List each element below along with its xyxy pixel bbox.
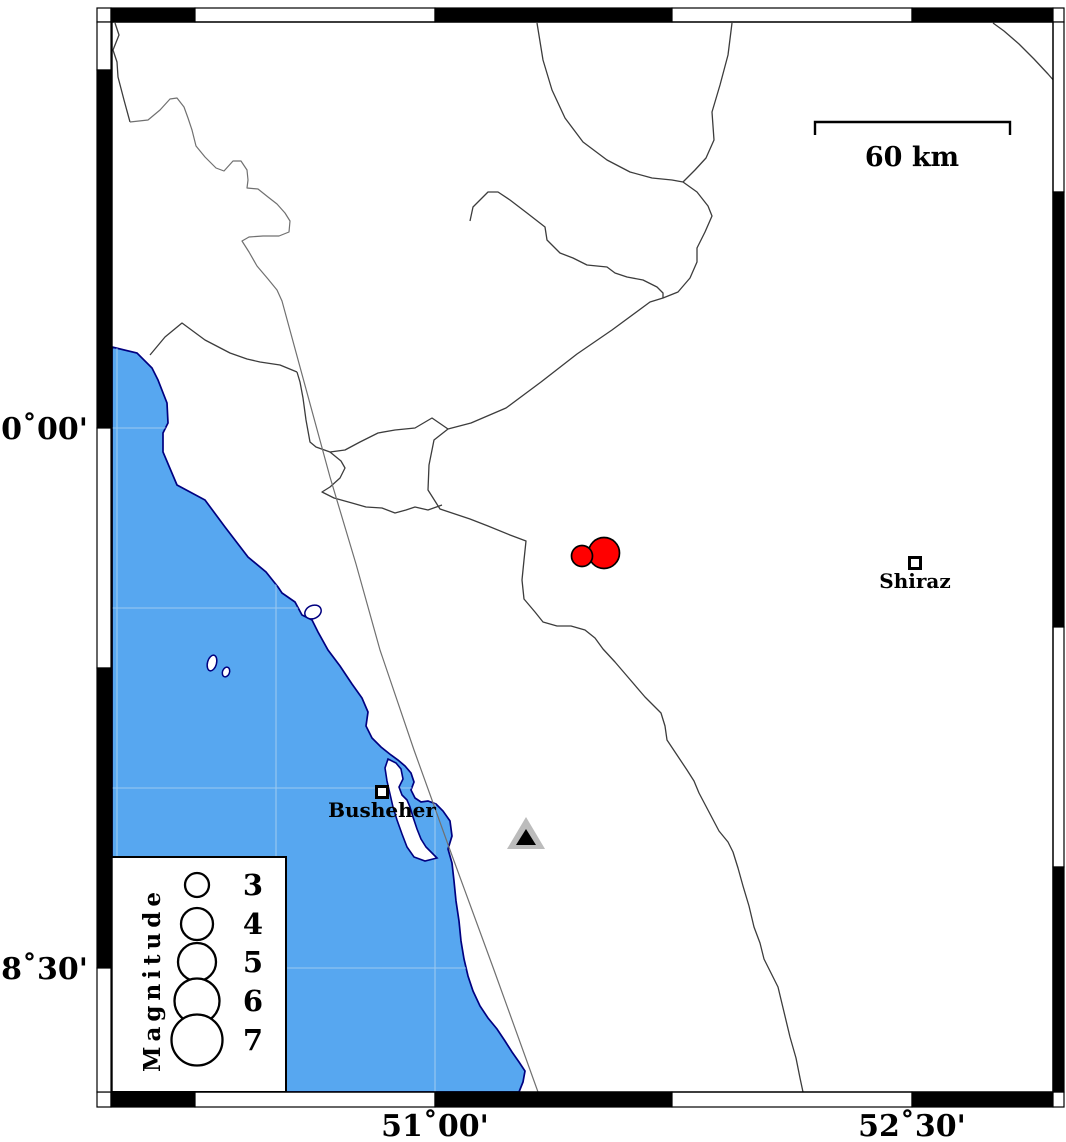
longitude-annotation: 51˚00' xyxy=(381,1109,489,1142)
seismicity-map: BusheherShiraz 60 km Magnitude 34567 xyxy=(0,0,1066,1142)
legend-magnitude-value: 6 xyxy=(243,984,263,1018)
city-square-marker xyxy=(910,558,921,569)
legend-magnitude-value: 5 xyxy=(243,945,263,979)
legend-magnitude-value: 3 xyxy=(243,868,263,902)
legend-magnitude-value: 4 xyxy=(243,907,263,941)
city-square-marker xyxy=(377,787,388,798)
city-label: Busheher xyxy=(328,798,436,822)
map-page: BusheherShiraz 60 km Magnitude 34567 xyxy=(0,0,1066,1142)
earthquake-epicenter-circle xyxy=(572,546,593,567)
longitude-annotation: 52˚30' xyxy=(858,1109,966,1142)
legend-magnitude-circle xyxy=(181,908,213,940)
legend-magnitude-circle xyxy=(178,943,216,981)
legend-magnitude-circle xyxy=(185,873,209,897)
legend-magnitude-circle xyxy=(172,1015,223,1066)
magnitude-legend: Magnitude 34567 xyxy=(110,857,286,1092)
scale-bar-label: 60 km xyxy=(865,142,959,173)
city-label: Shiraz xyxy=(879,569,950,593)
latitude-annotation: 30˚00' xyxy=(0,412,88,447)
legend-title: Magnitude xyxy=(139,887,166,1072)
legend-magnitude-value: 7 xyxy=(243,1023,263,1057)
earthquake-epicenter-circle xyxy=(589,538,620,569)
latitude-annotation: 28˚30' xyxy=(0,952,88,987)
